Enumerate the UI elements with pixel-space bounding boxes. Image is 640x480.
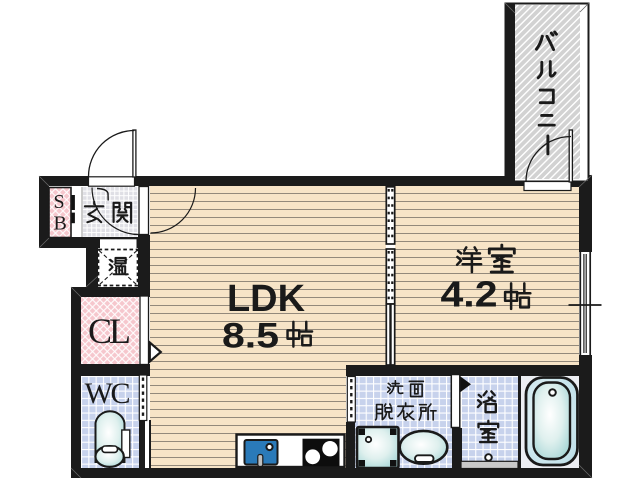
- svg-text:LDK: LDK: [227, 278, 306, 320]
- svg-text:S: S: [54, 191, 65, 213]
- svg-text:4.2: 4.2: [441, 274, 498, 315]
- svg-text:CL: CL: [88, 311, 131, 351]
- svg-text:WC: WC: [85, 377, 131, 410]
- svg-text:8.5: 8.5: [222, 317, 279, 356]
- svg-text:B: B: [54, 213, 67, 235]
